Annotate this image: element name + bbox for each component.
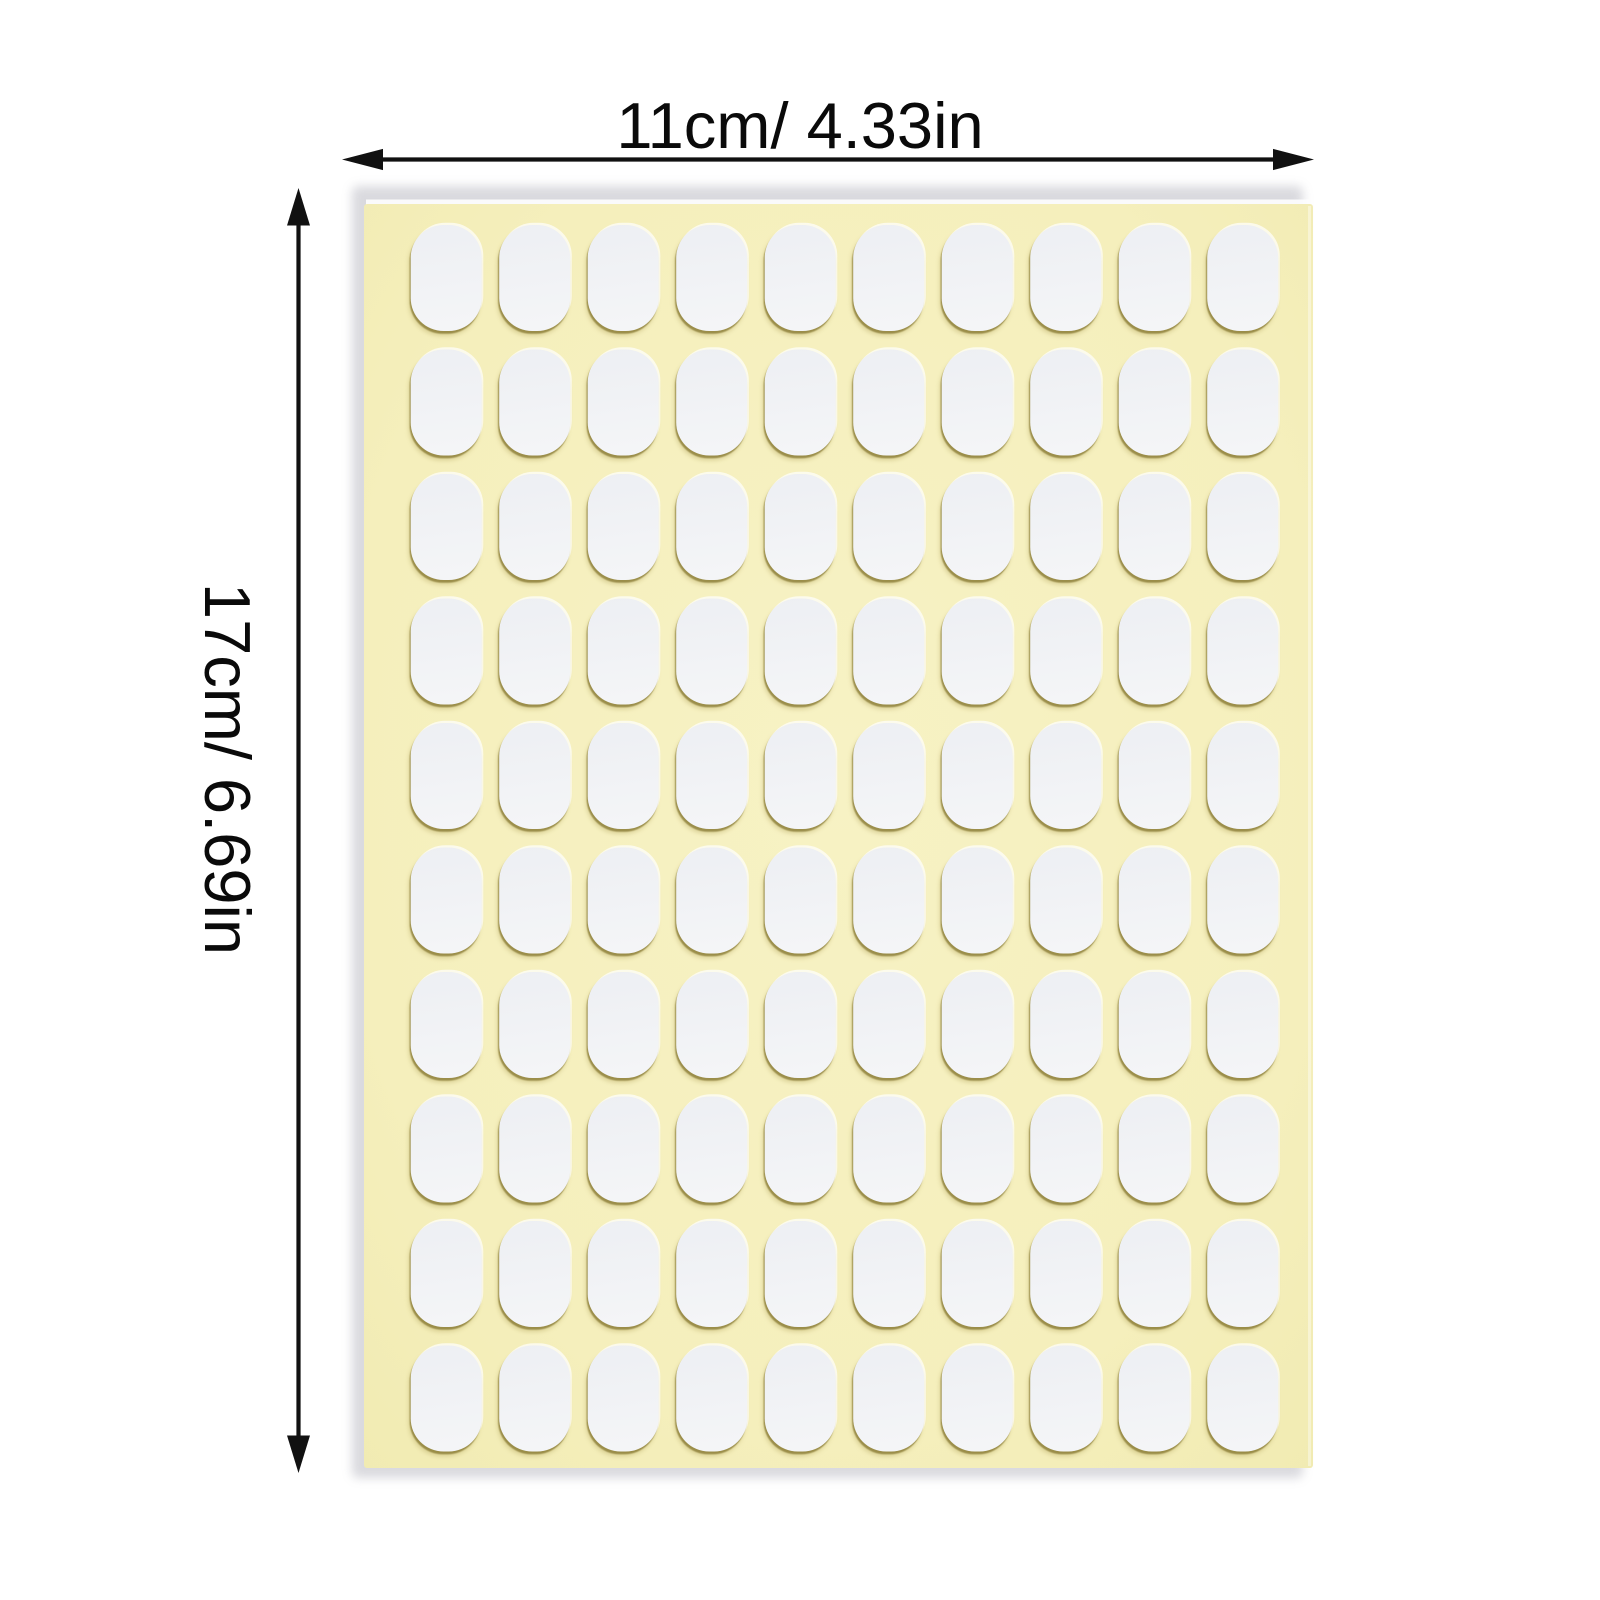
svg-text:11cm/ 4.33in: 11cm/ 4.33in (616, 89, 983, 162)
svg-text:17cm/ 6.69in: 17cm/ 6.69in (191, 583, 264, 955)
